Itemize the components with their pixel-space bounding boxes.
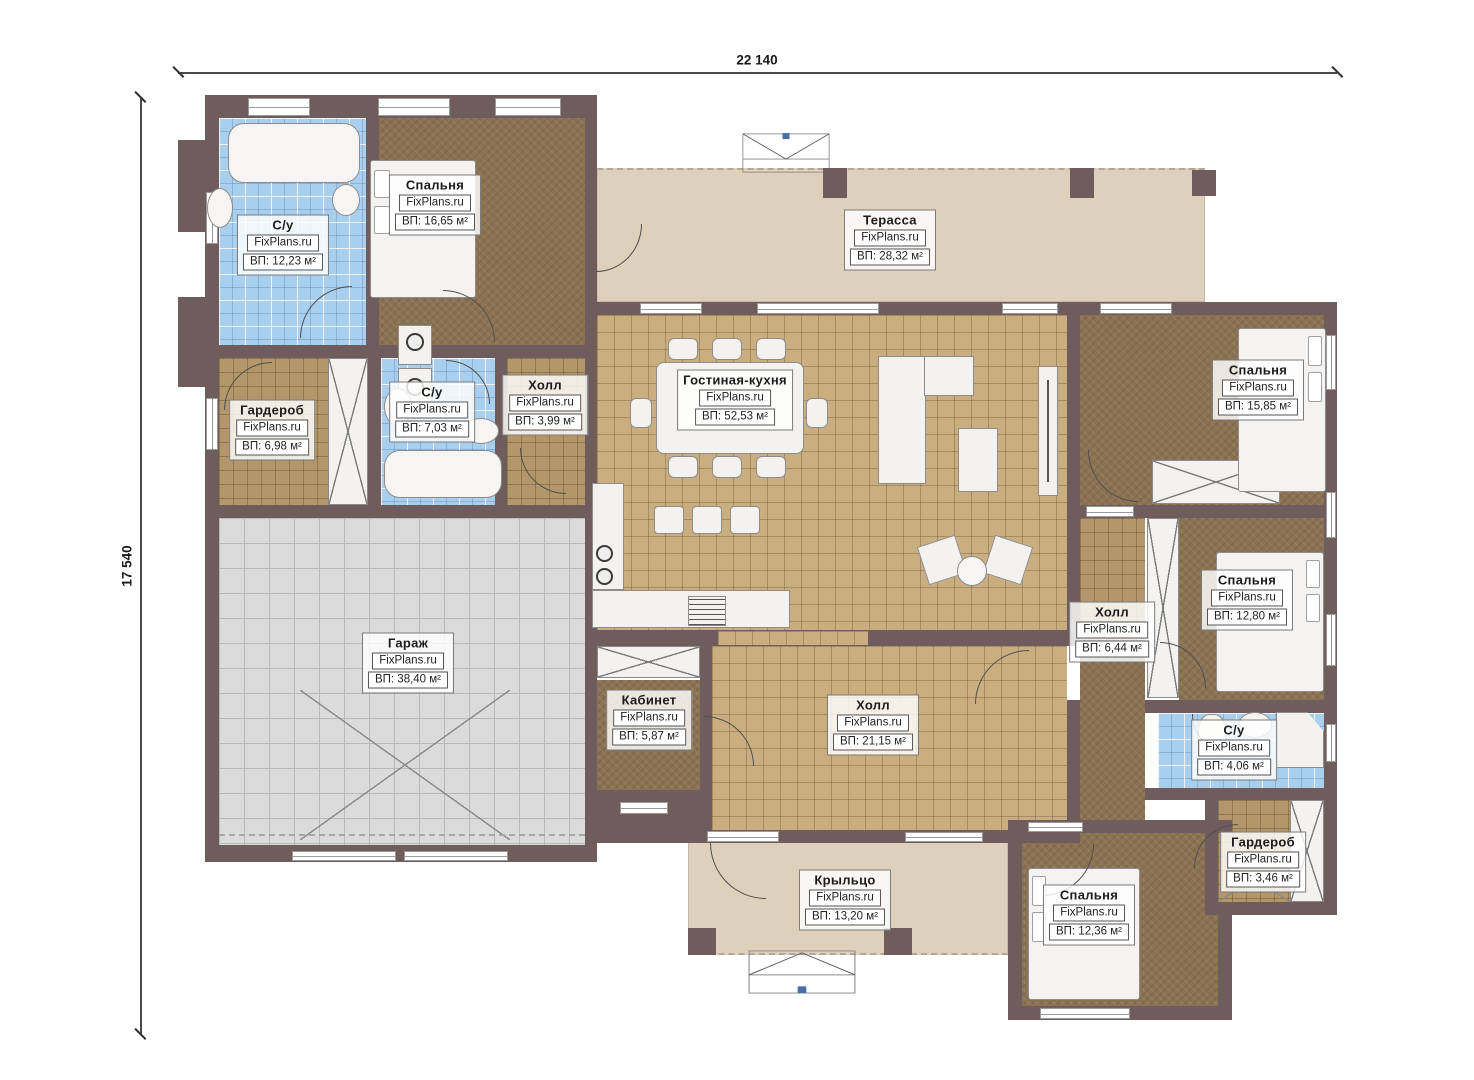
window — [378, 98, 450, 116]
door-opening — [1086, 506, 1134, 517]
room-brand: FixPlans.ru — [837, 715, 909, 732]
room-label-garage: Гараж FixPlans.ru ВП: 38,40 м² — [362, 633, 454, 694]
room-name: Гардероб — [240, 403, 304, 418]
room-name: Гараж — [388, 636, 428, 651]
room-area: ВП: 3,99 м² — [508, 414, 582, 431]
room-area: ВП: 52,53 м² — [695, 409, 775, 426]
coffee-table — [958, 428, 998, 492]
chair — [806, 398, 828, 428]
wall-opening — [718, 631, 868, 645]
room-name: Спальня — [1060, 888, 1118, 903]
room-label-bedroom-1: Спальня FixPlans.ru ВП: 16,65 м² — [389, 175, 481, 236]
wall — [205, 845, 597, 862]
room-name: С/у — [272, 218, 293, 233]
room-name: Кабинет — [622, 693, 677, 708]
stove-burner-icon — [596, 568, 613, 585]
room-brand: FixPlans.ru — [247, 235, 319, 252]
room-brand: FixPlans.ru — [399, 195, 471, 212]
room-area: ВП: 6,98 м² — [235, 439, 309, 456]
window — [1326, 492, 1336, 538]
window — [1100, 303, 1172, 314]
closet-crosshatch — [597, 646, 700, 678]
pillow — [374, 206, 390, 234]
sofa — [878, 356, 926, 484]
room-name: Гостиная-кухня — [683, 373, 787, 388]
room-area: ВП: 13,20 м² — [805, 909, 885, 926]
chair — [712, 338, 742, 360]
kitchen-sink — [688, 596, 726, 626]
window — [1326, 335, 1336, 390]
sink — [332, 184, 360, 216]
window — [757, 303, 879, 314]
room-label-wardrobe-1: Гардероб FixPlans.ru ВП: 6,98 м² — [229, 400, 315, 461]
room-brand: FixPlans.ru — [613, 710, 685, 727]
window — [1040, 1008, 1130, 1019]
room-brand: FixPlans.ru — [809, 890, 881, 907]
wall — [1008, 820, 1022, 1020]
room-name: С/у — [421, 385, 442, 400]
window — [640, 303, 702, 314]
tv-icon — [1047, 380, 1049, 482]
chair — [630, 398, 652, 428]
room-area: ВП: 5,87 м² — [612, 729, 686, 746]
bathtub — [228, 123, 360, 183]
sofa — [924, 356, 974, 396]
side-table — [957, 556, 987, 586]
window — [206, 398, 218, 450]
wall-bay — [178, 297, 205, 387]
garage-door — [404, 851, 508, 861]
room-name: Спальня — [1218, 573, 1276, 588]
room-area: ВП: 6,44 м² — [1075, 641, 1149, 658]
room-area: ВП: 4,06 м² — [1197, 759, 1271, 776]
pillow — [1308, 336, 1322, 366]
toilet — [207, 188, 233, 228]
dimension-label-height: 17 540 — [120, 541, 135, 590]
room-label-hall-3: Холл FixPlans.ru ВП: 21,15 м² — [827, 695, 919, 756]
room-name: Холл — [1095, 605, 1129, 620]
dimension-line-top — [178, 72, 1337, 74]
room-brand: FixPlans.ru — [1053, 905, 1125, 922]
door-opening — [707, 831, 779, 842]
bar-stool — [692, 506, 722, 534]
room-brand: FixPlans.ru — [854, 230, 926, 247]
room-label-bathroom-1: С/у FixPlans.ru ВП: 12,23 м² — [237, 215, 329, 276]
pillar — [688, 928, 716, 955]
room-brand: FixPlans.ru — [236, 420, 308, 437]
pillar — [823, 168, 847, 198]
room-area: ВП: 12,23 м² — [243, 254, 323, 271]
wall-bay — [178, 140, 205, 232]
floor-corridor — [1080, 640, 1145, 825]
wall — [1145, 788, 1337, 800]
room-brand: FixPlans.ru — [1076, 622, 1148, 639]
room-brand: FixPlans.ru — [396, 402, 468, 419]
room-name: Гардероб — [1231, 835, 1295, 850]
room-area: ВП: 7,03 м² — [395, 421, 469, 438]
bar-stool — [654, 506, 684, 534]
room-name: Спальня — [1229, 363, 1287, 378]
room-label-living-kitchen: Гостиная-кухня FixPlans.ru ВП: 52,53 м² — [677, 370, 793, 431]
room-area: ВП: 21,15 м² — [833, 734, 913, 751]
pillar — [884, 928, 912, 955]
room-brand: FixPlans.ru — [1198, 740, 1270, 757]
wall — [1218, 902, 1232, 1020]
wall — [585, 95, 597, 845]
pillar — [1192, 170, 1216, 196]
wall — [1067, 700, 1080, 825]
room-label-office: Кабинет FixPlans.ru ВП: 5,87 м² — [606, 690, 692, 751]
window — [905, 832, 983, 842]
room-label-terrace: Терасса FixPlans.ru ВП: 28,32 м² — [844, 210, 936, 271]
room-brand: FixPlans.ru — [509, 395, 581, 412]
wall — [1145, 700, 1337, 713]
chair — [756, 338, 786, 360]
door-opening — [620, 802, 668, 814]
pillow — [374, 170, 390, 198]
stove-burner-icon — [596, 545, 613, 562]
pillar — [1070, 168, 1094, 198]
garage-cross — [300, 690, 510, 840]
chair — [712, 456, 742, 478]
room-name: С/у — [1223, 723, 1244, 738]
room-name: Крыльцо — [814, 873, 875, 888]
chair — [668, 456, 698, 478]
room-name: Терасса — [863, 213, 917, 228]
room-label-bedroom-2: Спальня FixPlans.ru ВП: 15,85 м² — [1212, 360, 1304, 421]
room-area: ВП: 28,32 м² — [850, 249, 930, 266]
room-brand: FixPlans.ru — [699, 390, 771, 407]
canopy-symbol — [742, 133, 830, 173]
bar-stool — [730, 506, 760, 534]
dimension-line-left — [140, 97, 142, 1035]
room-label-wardrobe-2: Гардероб FixPlans.ru ВП: 3,46 м² — [1220, 832, 1306, 893]
pillow — [1308, 372, 1322, 402]
wall — [205, 505, 597, 518]
room-area: ВП: 16,65 м² — [395, 214, 475, 231]
room-area: ВП: 15,85 м² — [1218, 399, 1298, 416]
chair — [756, 456, 786, 478]
room-name: Холл — [528, 378, 562, 393]
room-brand: FixPlans.ru — [1211, 590, 1283, 607]
window — [1326, 614, 1336, 666]
chair — [668, 338, 698, 360]
wall — [585, 790, 712, 843]
floor-plan: 22 140 17 540 — [0, 0, 1474, 1080]
garage-dashed-line — [219, 834, 585, 836]
room-name: Холл — [856, 698, 890, 713]
closet-crosshatch — [328, 358, 368, 505]
wall — [1067, 315, 1080, 640]
room-area: ВП: 38,40 м² — [368, 672, 448, 689]
room-label-bedroom-3: Спальня FixPlans.ru ВП: 12,80 м² — [1201, 570, 1293, 631]
window — [1326, 724, 1336, 762]
room-brand: FixPlans.ru — [1227, 852, 1299, 869]
room-area: ВП: 12,36 м² — [1049, 924, 1129, 941]
room-area: ВП: 3,46 м² — [1226, 871, 1300, 888]
wall — [368, 345, 381, 518]
bathtub — [384, 450, 502, 498]
window — [1002, 303, 1058, 314]
pillow — [1306, 594, 1320, 622]
dimension-label-width: 22 140 — [732, 53, 781, 68]
room-label-hall-1: Холл FixPlans.ru ВП: 3,99 м² — [502, 375, 588, 436]
window — [1028, 822, 1083, 832]
garage-door — [292, 851, 396, 861]
room-label-hall-2: Холл FixPlans.ru ВП: 6,44 м² — [1069, 602, 1155, 663]
window — [248, 98, 310, 116]
room-brand: FixPlans.ru — [372, 653, 444, 670]
room-area: ВП: 12,80 м² — [1207, 609, 1287, 626]
room-name: Спальня — [406, 178, 464, 193]
room-brand: FixPlans.ru — [1222, 380, 1294, 397]
pillow — [1306, 560, 1320, 588]
room-label-porch: Крыльцо FixPlans.ru ВП: 13,20 м² — [799, 870, 891, 931]
room-label-bedroom-4: Спальня FixPlans.ru ВП: 12,36 м² — [1043, 885, 1135, 946]
window — [495, 98, 561, 116]
room-label-bathroom-3: С/у FixPlans.ru ВП: 4,06 м² — [1191, 720, 1277, 781]
room-label-bathroom-2: С/у FixPlans.ru ВП: 7,03 м² — [389, 382, 475, 443]
washer-drum-icon — [406, 333, 424, 351]
canopy-symbol — [748, 950, 856, 994]
